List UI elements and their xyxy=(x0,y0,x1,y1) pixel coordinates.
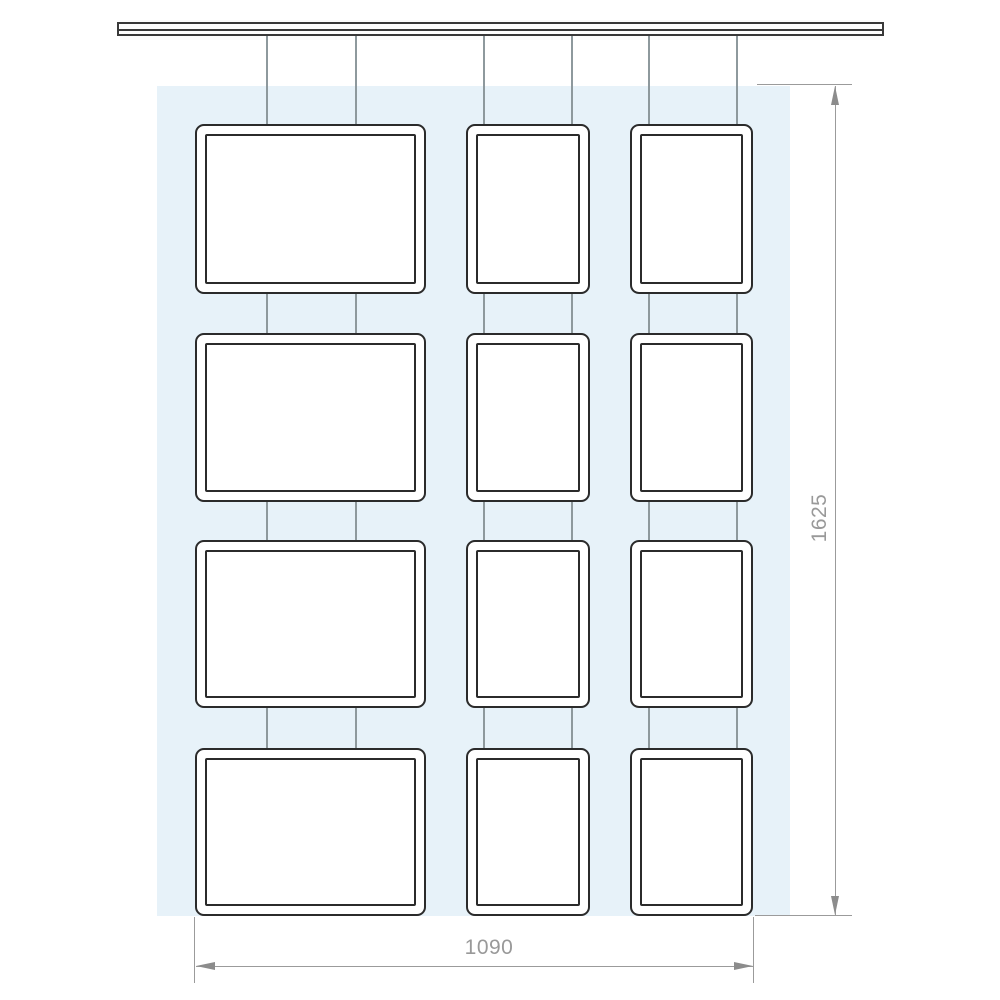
hanging-rail xyxy=(117,22,884,36)
frame-window xyxy=(640,550,743,698)
display-frame-r2-c1 xyxy=(195,333,426,502)
extension-line-right xyxy=(753,917,754,983)
display-frame-r2-c2 xyxy=(466,333,590,502)
suspension-cable-3-seg-3 xyxy=(483,502,485,540)
diagram-canvas: 1625 1090 xyxy=(0,0,1000,1000)
frame-window xyxy=(205,343,416,492)
suspension-cable-1-seg-3 xyxy=(266,502,268,540)
frame-window xyxy=(640,758,743,906)
suspension-cable-4-seg-1 xyxy=(571,36,573,124)
suspension-cable-4-seg-4 xyxy=(571,708,573,748)
display-frame-r3-c2 xyxy=(466,540,590,708)
frame-window xyxy=(476,550,580,698)
suspension-cable-5-seg-2 xyxy=(648,294,650,333)
suspension-cable-1-seg-2 xyxy=(266,294,268,333)
display-frame-r3-c1 xyxy=(195,540,426,708)
frame-window xyxy=(640,134,743,284)
suspension-cable-2-seg-2 xyxy=(355,294,357,333)
display-frame-r4-c1 xyxy=(195,748,426,916)
display-frame-r4-c2 xyxy=(466,748,590,916)
frame-window xyxy=(476,134,580,284)
suspension-cable-6-seg-2 xyxy=(736,294,738,333)
suspension-cable-3-seg-2 xyxy=(483,294,485,333)
suspension-cable-5-seg-3 xyxy=(648,502,650,540)
width-dimension-label: 1090 xyxy=(449,936,529,960)
arrowhead-left-icon xyxy=(196,962,215,970)
suspension-cable-5-seg-1 xyxy=(648,36,650,124)
frame-window xyxy=(205,134,416,284)
suspension-cable-2-seg-1 xyxy=(355,36,357,124)
display-frame-r1-c1 xyxy=(195,124,426,294)
arrowhead-right-icon xyxy=(734,962,753,970)
frame-window xyxy=(205,550,416,698)
arrowhead-down-icon xyxy=(831,896,839,915)
frame-window xyxy=(205,758,416,906)
suspension-cable-6-seg-3 xyxy=(736,502,738,540)
suspension-cable-2-seg-4 xyxy=(355,708,357,748)
display-frame-r1-c3 xyxy=(630,124,753,294)
suspension-cable-4-seg-2 xyxy=(571,294,573,333)
suspension-cable-2-seg-3 xyxy=(355,502,357,540)
suspension-cable-4-seg-3 xyxy=(571,502,573,540)
dimension-line-horizontal xyxy=(196,966,753,967)
display-frame-r2-c3 xyxy=(630,333,753,502)
frame-window xyxy=(640,343,743,492)
suspension-cable-1-seg-1 xyxy=(266,36,268,124)
suspension-cable-6-seg-4 xyxy=(736,708,738,748)
rail-channel-line xyxy=(119,29,882,31)
suspension-cable-5-seg-4 xyxy=(648,708,650,748)
display-frame-r1-c2 xyxy=(466,124,590,294)
frame-window xyxy=(476,343,580,492)
frame-window xyxy=(476,758,580,906)
display-frame-r3-c3 xyxy=(630,540,753,708)
dimension-line-vertical xyxy=(835,86,836,915)
suspension-cable-3-seg-1 xyxy=(483,36,485,124)
extension-line-bottom xyxy=(755,915,852,916)
suspension-cable-3-seg-4 xyxy=(483,708,485,748)
suspension-cable-1-seg-4 xyxy=(266,708,268,748)
height-dimension-label: 1625 xyxy=(808,488,832,548)
display-frame-r4-c3 xyxy=(630,748,753,916)
extension-line-left xyxy=(194,917,195,983)
extension-line-top xyxy=(757,84,852,85)
arrowhead-up-icon xyxy=(831,86,839,105)
suspension-cable-6-seg-1 xyxy=(736,36,738,124)
